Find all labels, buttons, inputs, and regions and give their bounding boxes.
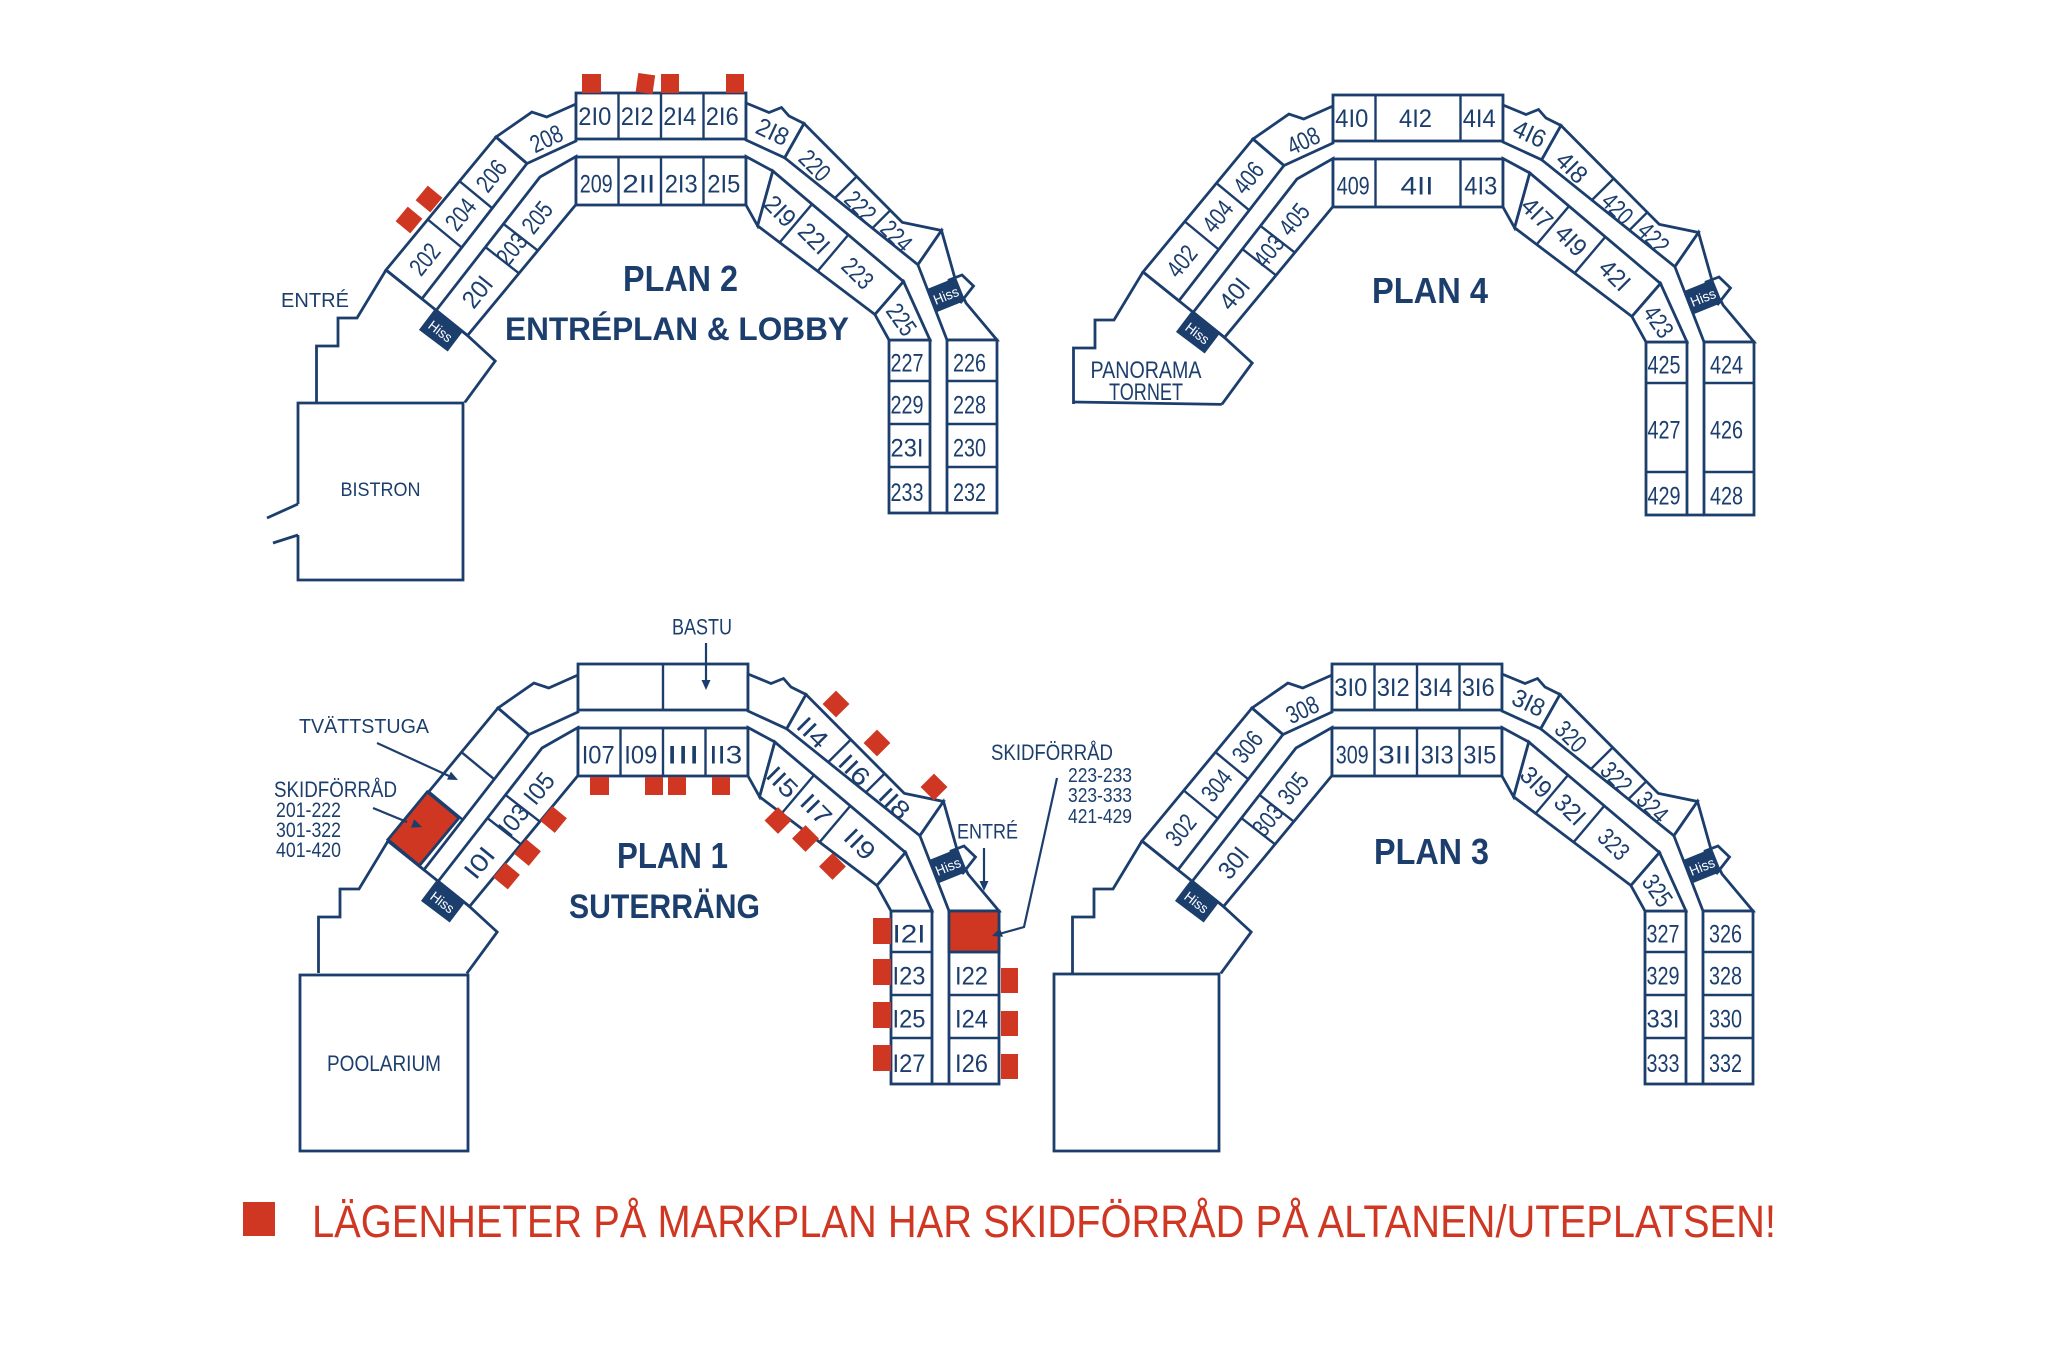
svg-text:I27: I27 xyxy=(893,1050,926,1078)
svg-text:TORNET: TORNET xyxy=(1109,379,1183,406)
svg-text:LÄGENHETER PÅ MARKPLAN HAR SKI: LÄGENHETER PÅ MARKPLAN HAR SKIDFÖRRÅD PÅ… xyxy=(312,1196,1776,1247)
svg-text:23I: 23I xyxy=(891,435,924,463)
svg-text:4I2: 4I2 xyxy=(1399,105,1432,133)
svg-text:2I6: 2I6 xyxy=(706,103,739,131)
svg-text:409: 409 xyxy=(1337,173,1370,201)
svg-text:PLAN 1: PLAN 1 xyxy=(617,835,728,876)
svg-text:PLAN 2: PLAN 2 xyxy=(623,258,738,299)
svg-text:BASTU: BASTU xyxy=(672,615,732,640)
svg-text:TVÄTTSTUGA: TVÄTTSTUGA xyxy=(299,716,430,738)
svg-text:33I: 33I xyxy=(1647,1006,1680,1034)
svg-text:4II: 4II xyxy=(1401,173,1434,201)
svg-text:I22: I22 xyxy=(955,963,988,991)
svg-text:2I3: 2I3 xyxy=(665,171,698,199)
svg-text:428: 428 xyxy=(1710,483,1743,511)
svg-text:POOLARIUM: POOLARIUM xyxy=(327,1051,441,1076)
svg-text:421-429: 421-429 xyxy=(1068,806,1132,828)
svg-text:I24: I24 xyxy=(955,1006,988,1034)
svg-text:226: 226 xyxy=(953,350,986,378)
svg-text:3I6: 3I6 xyxy=(1462,674,1495,702)
svg-text:323-333: 323-333 xyxy=(1068,785,1132,807)
svg-text:328: 328 xyxy=(1709,963,1742,991)
svg-text:426: 426 xyxy=(1710,417,1743,445)
svg-text:401-420: 401-420 xyxy=(276,839,341,862)
svg-text:4I4: 4I4 xyxy=(1463,105,1496,133)
svg-text:229: 229 xyxy=(891,392,924,420)
svg-text:4I0: 4I0 xyxy=(1335,105,1368,133)
svg-text:3I5: 3I5 xyxy=(1463,742,1496,770)
svg-text:233: 233 xyxy=(891,479,924,507)
svg-text:3I4: 3I4 xyxy=(1419,674,1452,702)
svg-text:230: 230 xyxy=(953,435,986,463)
svg-text:209: 209 xyxy=(580,171,613,199)
svg-text:2I4: 2I4 xyxy=(663,103,696,131)
svg-text:330: 330 xyxy=(1709,1006,1742,1034)
svg-text:SKIDFÖRRÅD: SKIDFÖRRÅD xyxy=(991,740,1113,765)
svg-text:PLAN 3: PLAN 3 xyxy=(1374,831,1489,872)
svg-text:2II: 2II xyxy=(622,171,655,199)
svg-text:ENTRÉPLAN & LOBBY: ENTRÉPLAN & LOBBY xyxy=(505,311,849,347)
svg-text:III: III xyxy=(667,742,700,770)
svg-text:2I5: 2I5 xyxy=(707,171,740,199)
svg-text:4I3: 4I3 xyxy=(1464,173,1497,201)
svg-text:I07: I07 xyxy=(582,742,615,770)
svg-text:3I0: 3I0 xyxy=(1334,674,1367,702)
svg-text:SUTERRÄNG: SUTERRÄNG xyxy=(569,888,760,926)
svg-text:2I0: 2I0 xyxy=(578,103,611,131)
svg-text:II3: II3 xyxy=(709,742,742,770)
svg-text:333: 333 xyxy=(1647,1050,1680,1078)
svg-text:3I2: 3I2 xyxy=(1377,674,1410,702)
svg-text:232: 232 xyxy=(953,479,986,507)
svg-text:ENTRÉ: ENTRÉ xyxy=(957,821,1018,844)
svg-text:309: 309 xyxy=(1336,742,1369,770)
svg-text:228: 228 xyxy=(953,392,986,420)
svg-text:327: 327 xyxy=(1647,921,1680,949)
svg-text:326: 326 xyxy=(1709,921,1742,949)
svg-text:424: 424 xyxy=(1710,352,1743,380)
svg-text:I09: I09 xyxy=(624,742,657,770)
svg-text:425: 425 xyxy=(1648,352,1681,380)
svg-text:I2I: I2I xyxy=(893,921,926,949)
svg-text:227: 227 xyxy=(891,350,924,378)
svg-text:329: 329 xyxy=(1647,963,1680,991)
svg-text:3I3: 3I3 xyxy=(1421,742,1454,770)
svg-text:427: 427 xyxy=(1648,417,1681,445)
svg-text:332: 332 xyxy=(1709,1050,1742,1078)
svg-text:3II: 3II xyxy=(1378,742,1411,770)
svg-text:I23: I23 xyxy=(893,963,926,991)
svg-text:I25: I25 xyxy=(893,1006,926,1034)
svg-text:PLAN 4: PLAN 4 xyxy=(1372,270,1488,311)
svg-text:2I2: 2I2 xyxy=(621,103,654,131)
svg-text:BISTRON: BISTRON xyxy=(341,480,421,501)
svg-text:429: 429 xyxy=(1648,483,1681,511)
svg-text:ENTRÉ: ENTRÉ xyxy=(281,289,349,312)
svg-text:223-233: 223-233 xyxy=(1068,765,1132,787)
svg-text:I26: I26 xyxy=(955,1050,988,1078)
